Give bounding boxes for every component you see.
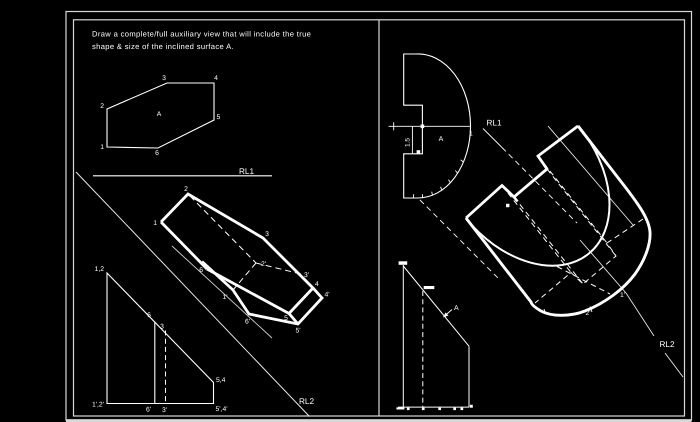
- svg-text:1.5: 1.5: [405, 138, 412, 147]
- svg-text:4': 4': [325, 292, 330, 299]
- svg-text:6: 6: [155, 150, 159, 157]
- svg-text:3: 3: [265, 231, 269, 238]
- svg-text:6: 6: [147, 312, 151, 319]
- svg-text:2': 2': [585, 310, 590, 317]
- svg-text:Draw a complete/full auxiliary: Draw a complete/full auxiliary view that…: [92, 30, 311, 39]
- svg-text:1': 1': [222, 294, 227, 301]
- svg-text:5',4': 5',4': [216, 406, 228, 413]
- svg-text:A: A: [454, 305, 459, 312]
- svg-text:6: 6: [199, 267, 203, 274]
- svg-text:2: 2: [100, 103, 104, 110]
- svg-text:shape & size of the inclined s: shape & size of the inclined surface A.: [92, 42, 234, 51]
- svg-text:A: A: [157, 111, 162, 118]
- svg-text:1: 1: [100, 144, 104, 151]
- svg-text:2: 2: [184, 186, 188, 193]
- svg-text:RL1: RL1: [487, 119, 502, 128]
- svg-text:3': 3': [162, 407, 167, 414]
- svg-text:RL2: RL2: [299, 397, 314, 406]
- svg-text:1,2: 1,2: [95, 266, 105, 273]
- svg-text:3: 3: [162, 75, 166, 82]
- svg-text:2': 2': [261, 261, 266, 268]
- svg-text:4: 4: [315, 281, 319, 288]
- svg-text:1',2': 1',2': [92, 402, 104, 409]
- svg-text:1: 1: [153, 220, 157, 227]
- svg-text:3: 3: [160, 324, 164, 331]
- svg-text:A: A: [439, 136, 444, 143]
- svg-text:3': 3': [304, 272, 309, 279]
- svg-text:5: 5: [284, 315, 288, 322]
- svg-text:1: 1: [469, 131, 473, 138]
- svg-text:5: 5: [217, 114, 221, 121]
- svg-text:1': 1': [620, 292, 625, 299]
- svg-text:5': 5': [295, 328, 300, 335]
- svg-text:6': 6': [146, 407, 151, 414]
- svg-text:6': 6': [245, 319, 250, 326]
- svg-text:4: 4: [214, 75, 218, 82]
- svg-text:5,4: 5,4: [216, 377, 226, 384]
- svg-text:RL2: RL2: [660, 340, 675, 349]
- svg-text:RL1: RL1: [239, 167, 254, 176]
